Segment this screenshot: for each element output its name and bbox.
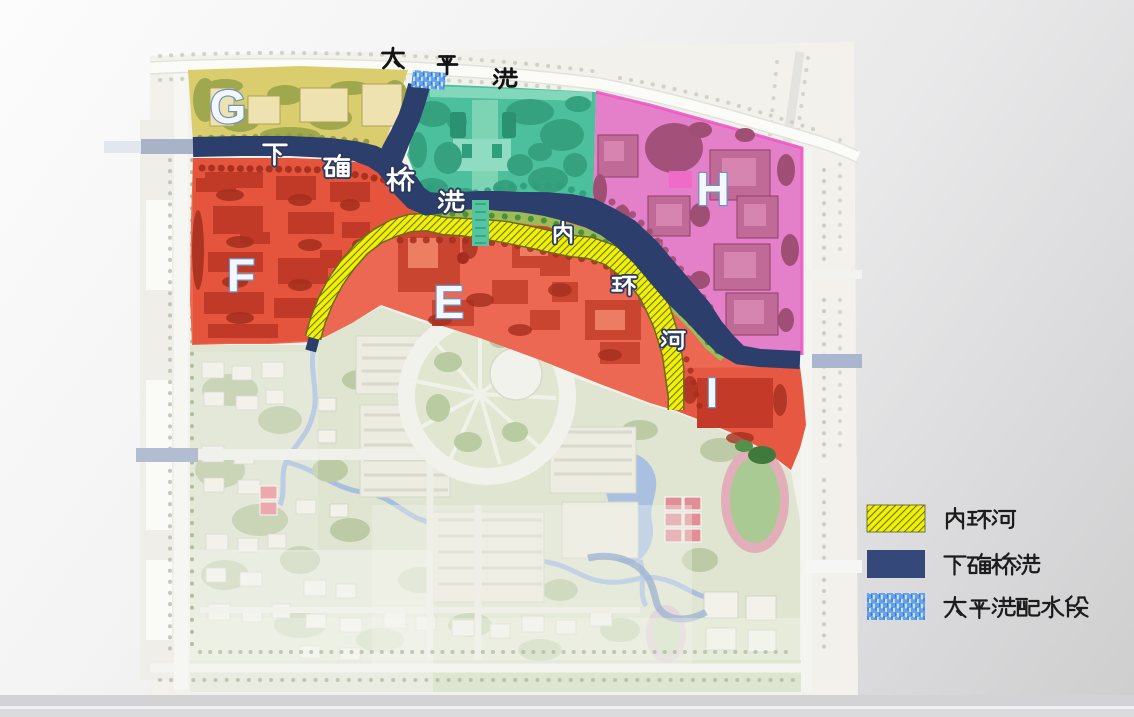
svg-text:I: I [706,369,718,416]
svg-text:E: E [434,276,465,328]
svg-text:H: H [696,163,729,215]
svg-text:F: F [227,249,255,301]
svg-text:G: G [210,80,247,133]
